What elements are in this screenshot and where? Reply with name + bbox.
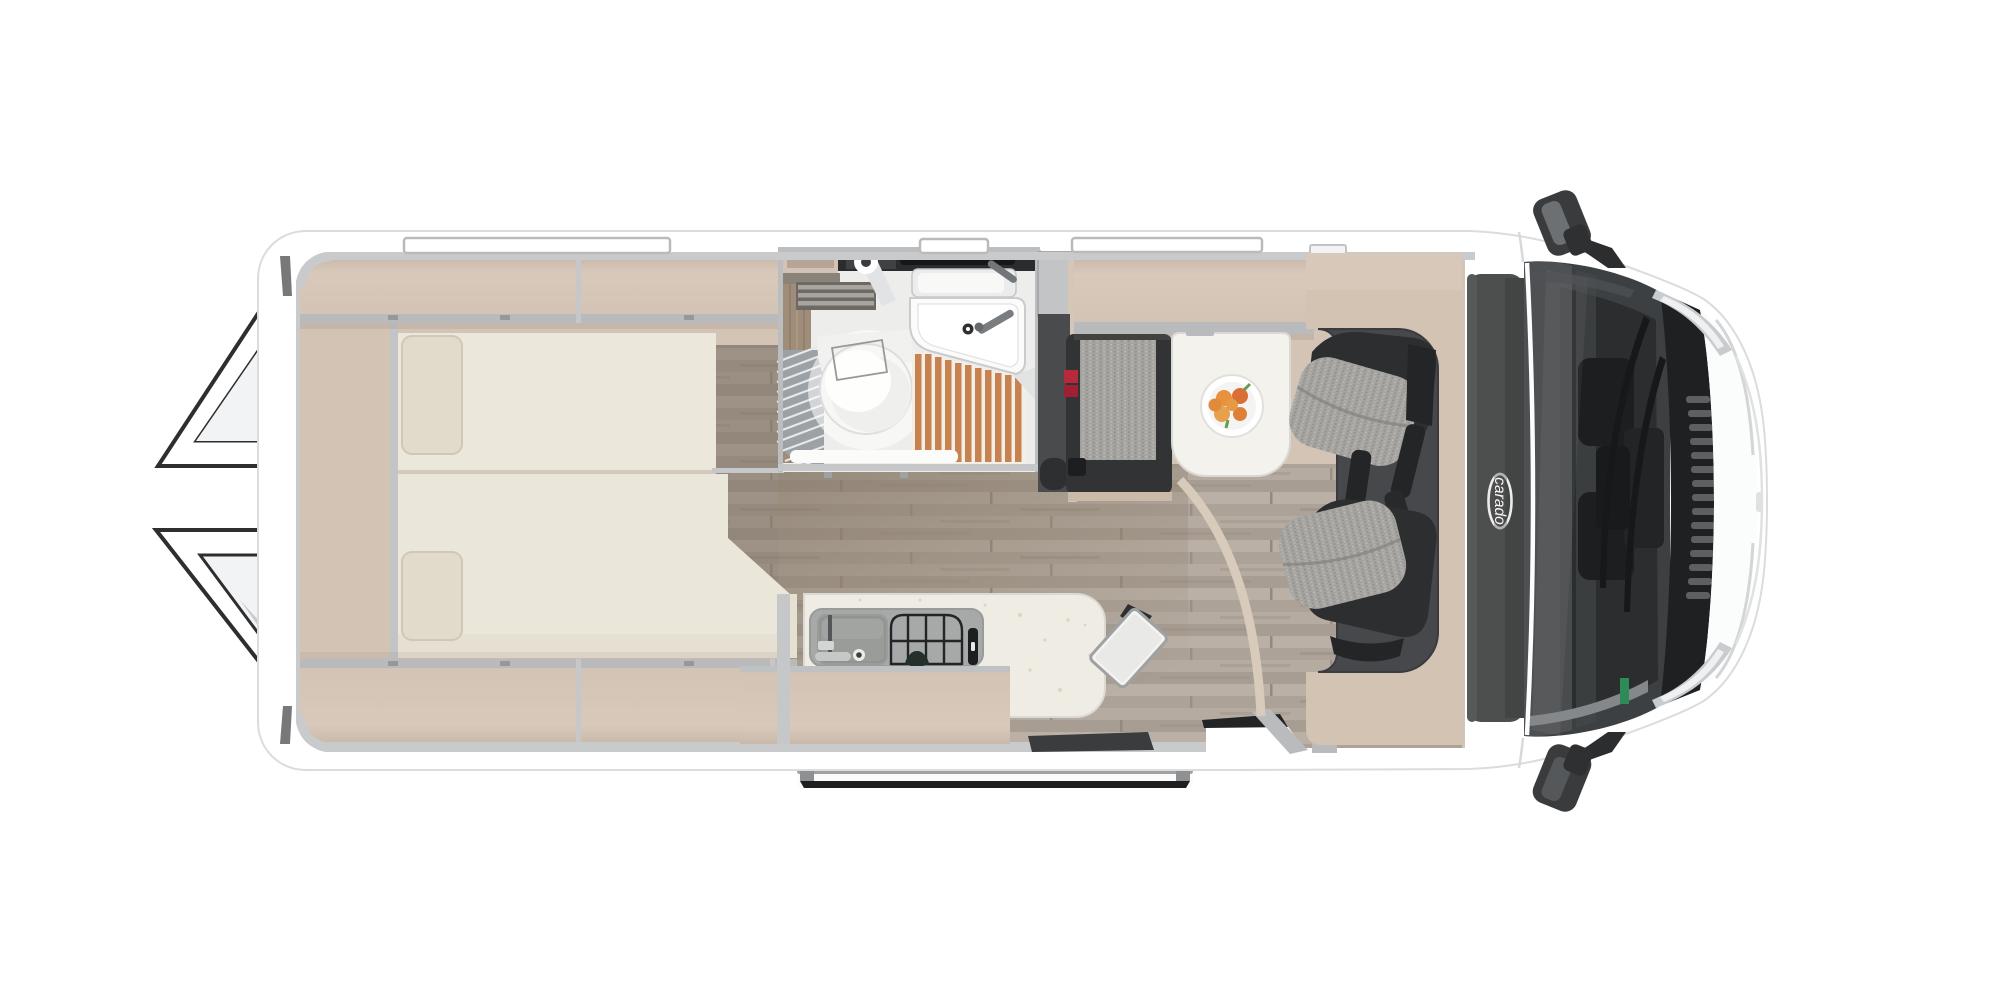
svg-text:carado: carado xyxy=(1491,477,1508,525)
